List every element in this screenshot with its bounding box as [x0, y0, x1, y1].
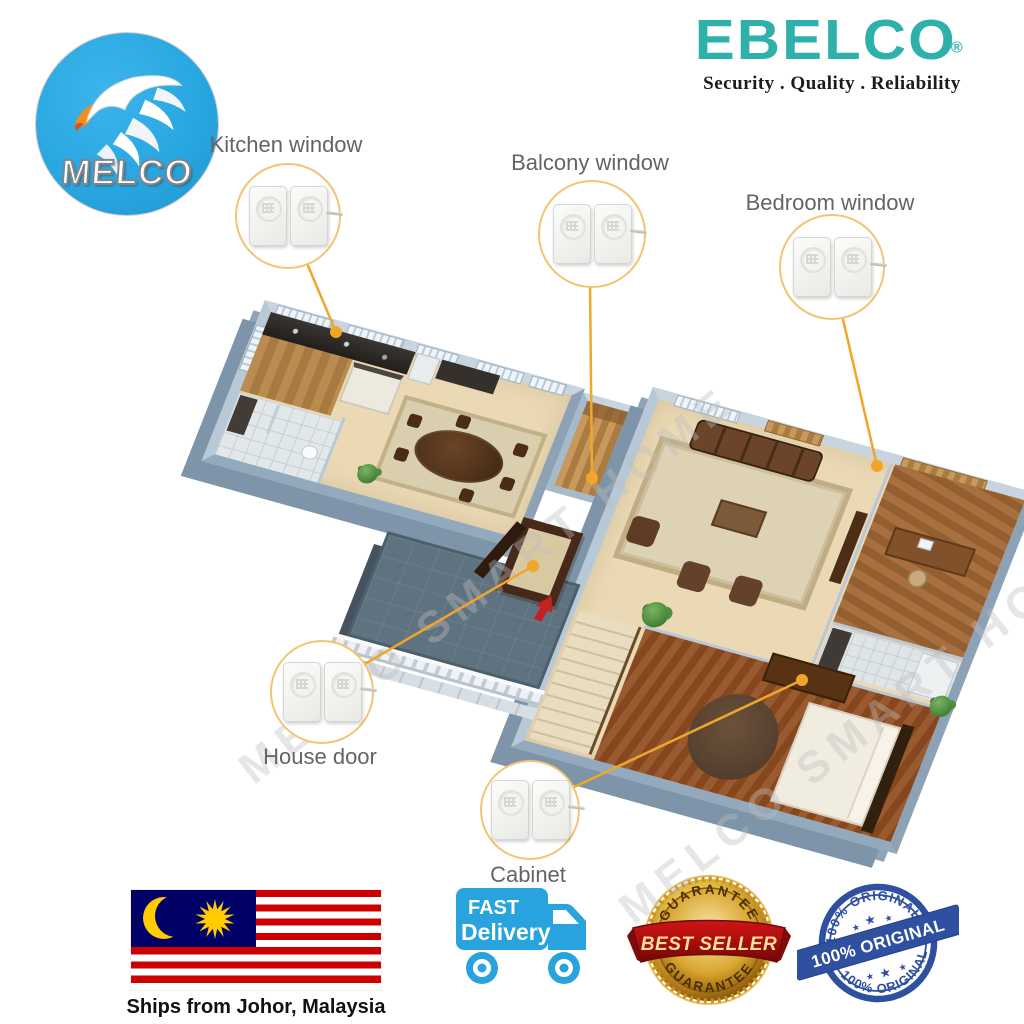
door-window-sensor	[283, 662, 362, 722]
star-icon: ★	[863, 912, 878, 930]
bedroom-window-callout	[779, 214, 885, 320]
sensor-magnet	[283, 662, 321, 722]
antenna-icon	[629, 229, 646, 234]
product-image: MELCO SMART HOME MELCO SMART HOME Kitche…	[0, 0, 1024, 1024]
fourteen-point-star-icon	[191, 895, 239, 943]
sensor-magnet	[249, 186, 287, 246]
best-seller-text: BEST SELLER	[641, 934, 777, 955]
sensor-magnet	[793, 237, 831, 297]
sensor-transmitter	[594, 204, 632, 264]
ebelco-logo: EBELCO® Security . Quality . Reliability	[672, 12, 992, 95]
malaysia-flag	[131, 890, 381, 990]
house-door-label: House door	[210, 744, 430, 770]
original-stamp-icon: 100% ORIGINAL 100% ORIGINAL ★ ★ ★ ★ ★ ★ …	[797, 868, 959, 1018]
dining-window-2	[528, 375, 567, 396]
flag-canton	[131, 890, 256, 947]
antenna-icon	[567, 805, 584, 810]
antenna-icon	[325, 211, 342, 216]
antenna-icon	[869, 262, 886, 267]
star-icon: ★	[878, 965, 893, 983]
cabinet-callout	[480, 760, 580, 860]
left-wing	[202, 300, 585, 550]
sensor-transmitter	[324, 662, 362, 722]
delivery-truck-icon: FAST Delivery	[452, 882, 602, 992]
star-icon: ★	[865, 972, 876, 984]
shipping-caption: Ships from Johor, Malaysia	[106, 996, 406, 1019]
kitchen-window-callout	[235, 163, 341, 269]
melco-wordmark: MELCO	[35, 153, 220, 193]
door-window-sensor	[793, 237, 872, 297]
melco-logo: MELCO	[36, 33, 218, 215]
sensor-magnet	[553, 204, 591, 264]
original-stamp-badge: 100% ORIGINAL 100% ORIGINAL ★ ★ ★ ★ ★ ★ …	[797, 868, 959, 1023]
sensor-magnet	[491, 780, 529, 840]
sensor-transmitter	[834, 237, 872, 297]
house-door-callout	[270, 640, 374, 744]
ebelco-wordmark: EBELCO	[695, 12, 957, 69]
antenna-icon	[359, 687, 376, 692]
balcony-window-callout	[538, 180, 646, 288]
star-icon: ★	[898, 962, 909, 974]
door-window-sensor	[491, 780, 570, 840]
kitchen-window-label: Kitchen window	[176, 132, 396, 158]
balcony-window-label: Balcony window	[480, 150, 700, 176]
door-window-sensor	[249, 186, 328, 246]
delivery-text: Delivery	[461, 919, 551, 945]
fast-text: FAST	[468, 897, 519, 919]
cabinet-label: Cabinet	[418, 862, 638, 888]
ebelco-tagline: Security . Quality . Reliability	[672, 73, 992, 95]
sensor-transmitter	[290, 186, 328, 246]
door-window-sensor	[553, 204, 632, 264]
sensor-transmitter	[532, 780, 570, 840]
bedroom-window-label: Bedroom window	[720, 190, 940, 216]
fast-delivery-badge: FAST Delivery	[452, 882, 602, 997]
